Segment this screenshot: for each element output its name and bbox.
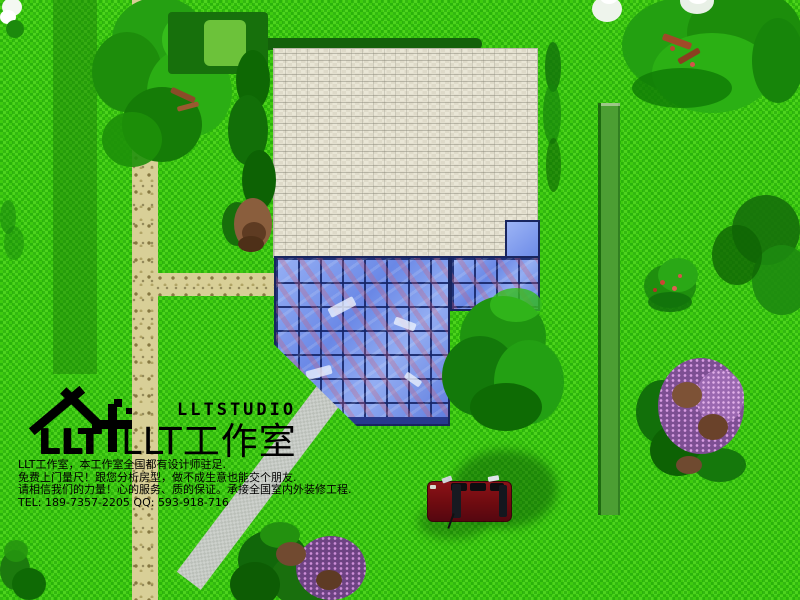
studio-name-cjk: LLT工作室: [121, 411, 297, 465]
info-line-4: TEL: 189-7357-2205 QQ: 593-918-716: [18, 497, 352, 510]
watermark: LLT LLTSTUDIO LLT工作室 LLT工作室，本工作室全国都有设计师驻…: [0, 0, 800, 600]
logo-llt-text: LLT: [38, 422, 102, 462]
info-line-1: LLT工作室，本工作室全国都有设计师驻足.: [18, 459, 352, 472]
info-line-3: 请相信我们的力量！心的服务、质的保证。承接全国室内外装修工程.: [18, 484, 352, 497]
scene-render: LLT LLTSTUDIO LLT工作室 LLT工作室，本工作室全国都有设计师驻…: [0, 0, 800, 600]
studio-info-block: LLT工作室，本工作室全国都有设计师驻足. 免费上门量尺！跟您分析房型，做不成生…: [18, 459, 352, 509]
